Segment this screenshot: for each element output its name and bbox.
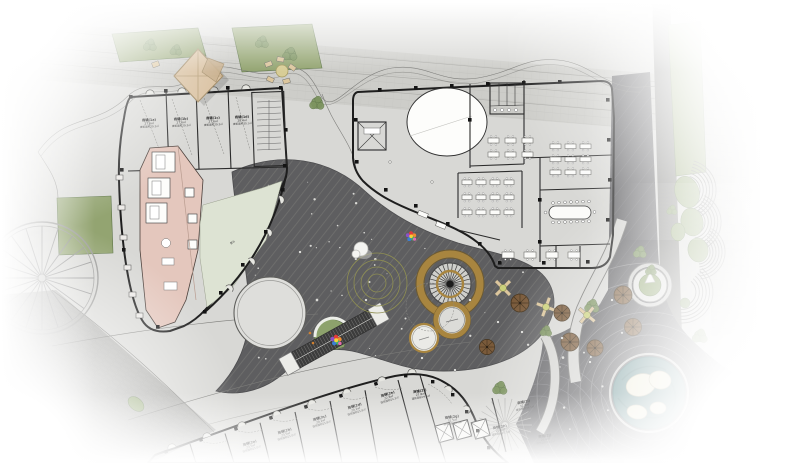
chair-dot — [529, 158, 531, 160]
chair-dot — [496, 208, 498, 210]
fleck — [404, 317, 406, 319]
desk — [476, 195, 486, 200]
desk — [462, 195, 472, 200]
chair-dot — [495, 144, 497, 146]
chair-dot — [496, 185, 498, 187]
chair-dot — [567, 142, 569, 144]
chair-dot — [492, 185, 494, 187]
chair-dot — [506, 185, 508, 187]
desk — [546, 252, 558, 258]
meeting-table — [549, 206, 591, 219]
fleck — [331, 290, 332, 291]
chair-dot — [478, 208, 480, 210]
desk — [565, 157, 576, 162]
chair-dot — [582, 168, 584, 170]
fleck — [368, 281, 370, 283]
chair-dot — [587, 175, 589, 177]
desk — [580, 144, 591, 149]
fleck — [522, 271, 524, 273]
fleck — [339, 247, 340, 248]
fleck — [671, 427, 673, 429]
chair-dot — [510, 215, 512, 217]
fleck — [371, 239, 372, 240]
desk — [488, 138, 499, 143]
chair-dot — [567, 175, 569, 177]
desk — [490, 210, 500, 215]
desk — [522, 138, 533, 143]
chair-dot — [478, 215, 480, 217]
desk — [568, 252, 580, 258]
chair-dot — [552, 155, 554, 157]
chair-dot — [507, 144, 509, 146]
chair-dot — [552, 149, 554, 151]
chair-dot — [506, 215, 508, 217]
chair-dot — [464, 208, 466, 210]
meeting-chairs-part — [582, 200, 585, 203]
chair-dot — [468, 193, 470, 195]
chair-dot — [482, 178, 484, 180]
desk — [580, 157, 591, 162]
meeting-chairs-part — [588, 200, 591, 203]
parasol — [561, 333, 579, 351]
chair-dot — [496, 178, 498, 180]
fleck — [569, 428, 571, 430]
fleck — [583, 352, 585, 354]
chair-dot — [482, 215, 484, 217]
orange-marker — [309, 332, 312, 335]
meeting-chairs-part — [570, 220, 573, 223]
parasol — [624, 318, 641, 335]
meeting-chairs-part — [552, 202, 555, 205]
chair-dot — [482, 185, 484, 187]
people-dots-part — [589, 361, 592, 364]
people-dots-part — [497, 321, 500, 324]
chair-dot — [492, 215, 494, 217]
chair-dot — [490, 136, 492, 138]
fleck — [424, 248, 425, 249]
chair-dot — [532, 259, 534, 261]
fleck — [369, 348, 370, 349]
chair-dot — [548, 250, 550, 252]
people-dots-part — [431, 181, 434, 184]
chair-dot — [582, 142, 584, 144]
chair-dot — [506, 200, 508, 202]
chair-dot — [496, 200, 498, 202]
chair-dot — [495, 136, 497, 138]
desk — [502, 252, 514, 258]
desk — [504, 195, 514, 200]
parasol — [554, 305, 570, 321]
suite-table — [162, 239, 171, 248]
people-dots-part — [521, 331, 524, 334]
desk — [505, 152, 516, 157]
site-plan-stage: 商铺(1a)27.6㎡建筑面积29.3㎡ 商铺(1b)27.6㎡建筑面积29.3… — [0, 0, 800, 463]
chair-dot — [526, 259, 528, 261]
chair-dot — [570, 259, 572, 261]
chair-dot — [504, 259, 506, 261]
fleck — [257, 267, 259, 269]
chair-dot — [510, 193, 512, 195]
people-dots-part — [611, 299, 614, 302]
meeting-chairs-part — [570, 201, 573, 204]
chair-dot — [582, 149, 584, 151]
people-dots-part — [421, 357, 424, 360]
circle-plaza — [234, 277, 306, 349]
fleck — [484, 312, 485, 313]
suite-sofa — [162, 258, 174, 265]
meeting-chairs-part — [593, 211, 596, 214]
chair-dot — [557, 168, 559, 170]
fleck — [341, 295, 343, 297]
chair-dot — [529, 136, 531, 138]
fleck — [621, 332, 623, 334]
meeting-chairs-part — [544, 211, 547, 214]
desk — [504, 210, 514, 215]
chair-dot — [582, 175, 584, 177]
chair-dot — [504, 250, 506, 252]
parasol — [511, 294, 529, 312]
chair-dot — [492, 193, 494, 195]
chair-dot — [567, 149, 569, 151]
desk — [524, 252, 536, 258]
chair-dot — [512, 150, 514, 152]
meeting-chairs-part — [576, 220, 579, 223]
fleck — [316, 299, 319, 302]
atrium-void — [407, 88, 487, 156]
chair-dot — [478, 185, 480, 187]
fleck — [563, 406, 565, 408]
fleck — [313, 198, 315, 200]
chair-dot — [464, 193, 466, 195]
fleck — [258, 357, 260, 359]
fleck — [590, 356, 592, 358]
chair-dot — [557, 155, 559, 157]
chair-dot — [464, 185, 466, 187]
chair-dot — [552, 175, 554, 177]
chair-dot — [492, 178, 494, 180]
chair-dot — [478, 200, 480, 202]
chair-dot — [557, 149, 559, 151]
chair-dot — [482, 208, 484, 210]
chair-dot — [557, 142, 559, 144]
chair-dot — [510, 259, 512, 261]
fleck — [316, 247, 317, 248]
chair-dot — [552, 142, 554, 144]
desk — [490, 180, 500, 185]
fleck — [401, 328, 403, 330]
chair-dot — [587, 155, 589, 157]
chair-dot — [582, 155, 584, 157]
water-feature — [610, 354, 688, 432]
chair-dot — [510, 185, 512, 187]
fleck — [601, 385, 603, 387]
chair-dot — [512, 158, 514, 160]
people-dots-part — [365, 299, 368, 302]
people-dots-part — [469, 299, 472, 302]
fleck — [527, 344, 529, 346]
meeting-chairs-part — [576, 200, 579, 203]
chair-dot — [554, 259, 556, 261]
desk — [505, 138, 516, 143]
chair-dot — [532, 250, 534, 252]
chair-dot — [468, 178, 470, 180]
fleck — [562, 356, 565, 359]
chair-dot — [548, 259, 550, 261]
desk — [550, 144, 561, 149]
chair-dot — [468, 200, 470, 202]
chair-dot — [576, 259, 578, 261]
chair-dot — [572, 162, 574, 164]
chair-dot — [478, 178, 480, 180]
fleck — [374, 264, 376, 266]
chair-dot — [512, 144, 514, 146]
chair-dot — [572, 142, 574, 144]
chair-dot — [567, 155, 569, 157]
fleck — [355, 202, 357, 204]
chair-dot — [495, 158, 497, 160]
suite-dining — [164, 282, 177, 290]
chair-dot — [506, 208, 508, 210]
chair-dot — [464, 215, 466, 217]
parasol — [479, 339, 494, 354]
chair-dot — [510, 178, 512, 180]
fleck — [607, 409, 609, 411]
desk — [490, 195, 500, 200]
chair-dot — [490, 158, 492, 160]
chair-dot — [554, 250, 556, 252]
chair-dot — [572, 168, 574, 170]
chair-dot — [490, 144, 492, 146]
site-plan-drawing: 商铺(1a)27.6㎡建筑面积29.3㎡ 商铺(1b)27.6㎡建筑面积29.3… — [0, 0, 800, 463]
chair-dot — [510, 208, 512, 210]
desk — [522, 152, 533, 157]
fleck — [307, 182, 308, 183]
chair-dot — [495, 150, 497, 152]
gold-rim-circle — [410, 324, 438, 352]
chair-dot — [492, 200, 494, 202]
chair-dot — [482, 200, 484, 202]
desk — [462, 210, 472, 215]
chair-dot — [478, 193, 480, 195]
chair-dot — [572, 149, 574, 151]
desk — [488, 152, 499, 157]
desk — [565, 170, 576, 175]
chair-dot — [524, 144, 526, 146]
chair-dot — [496, 193, 498, 195]
chair-dot — [587, 168, 589, 170]
chair-dot — [524, 150, 526, 152]
chair-dot — [512, 136, 514, 138]
fleck — [310, 245, 312, 247]
chair-dot — [510, 250, 512, 252]
meeting-chairs-part — [588, 220, 591, 223]
chair-dot — [552, 162, 554, 164]
chair-dot — [526, 250, 528, 252]
chair-dot — [552, 168, 554, 170]
chair-dot — [468, 215, 470, 217]
meeting-chairs-part — [564, 201, 567, 204]
chair-dot — [492, 208, 494, 210]
chair-dot — [490, 150, 492, 152]
meeting-chairs-part — [558, 221, 561, 224]
fleck — [328, 241, 329, 242]
chair-dot — [506, 178, 508, 180]
fleck — [337, 225, 339, 227]
fleck — [769, 424, 771, 426]
parasol — [587, 340, 603, 356]
chair-dot — [557, 175, 559, 177]
desk — [580, 170, 591, 175]
meeting-chairs-part — [558, 201, 561, 204]
chair-dot — [507, 136, 509, 138]
chair-dot — [587, 162, 589, 164]
people-dots-part — [299, 251, 302, 254]
fleck — [735, 441, 737, 443]
chair-dot — [587, 142, 589, 144]
meeting-chairs-part — [582, 220, 585, 223]
fleck — [353, 193, 355, 195]
suite-bath — [188, 214, 197, 223]
chair-dot — [587, 149, 589, 151]
chair-dot — [468, 208, 470, 210]
desk-cluster — [550, 142, 591, 177]
chair-dot — [507, 158, 509, 160]
desk — [550, 157, 561, 162]
chair-dot — [496, 215, 498, 217]
chair-dot — [576, 250, 578, 252]
chair-dot — [567, 168, 569, 170]
orange-marker — [312, 342, 315, 345]
suite-bath — [185, 188, 194, 197]
chair-dot — [567, 162, 569, 164]
chair-dot — [468, 185, 470, 187]
chair-dot — [510, 200, 512, 202]
fleck — [363, 232, 365, 234]
desk — [565, 144, 576, 149]
chair-dot — [529, 150, 531, 152]
fleck — [469, 335, 471, 337]
fleck — [255, 275, 256, 276]
chair-dot — [482, 193, 484, 195]
chair-dot — [524, 136, 526, 138]
chair-dot — [582, 162, 584, 164]
parasol — [614, 286, 632, 304]
chair-dot — [570, 250, 572, 252]
chair-dot — [464, 200, 466, 202]
chair-dot — [572, 155, 574, 157]
fleck — [763, 449, 765, 451]
meeting-chairs-part — [564, 221, 567, 224]
chair-dot — [524, 158, 526, 160]
desk — [504, 180, 514, 185]
fleck — [387, 273, 388, 274]
desk — [476, 210, 486, 215]
chair-dot — [464, 178, 466, 180]
chair-dot — [557, 162, 559, 164]
desk — [476, 180, 486, 185]
people-dots-part — [561, 337, 564, 340]
chair-dot — [572, 175, 574, 177]
chair-dot — [529, 144, 531, 146]
fleck — [779, 419, 781, 421]
meeting-chairs-part — [552, 221, 555, 224]
people-dots-part — [454, 369, 457, 372]
desk — [550, 170, 561, 175]
chair-dot — [506, 193, 508, 195]
people-dots-part — [389, 161, 392, 164]
desk — [462, 180, 472, 185]
fleck — [311, 213, 312, 214]
fleck — [265, 358, 267, 360]
chair-dot — [507, 150, 509, 152]
